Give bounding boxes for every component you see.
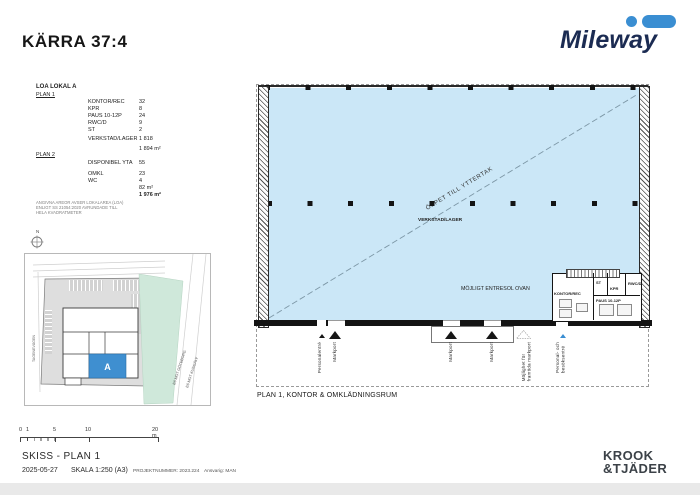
- row-label: ST: [88, 127, 95, 133]
- office-wall: [593, 295, 640, 296]
- compass: N: [30, 229, 46, 249]
- loading-canopy: [431, 326, 514, 343]
- entrance-label-markport: Markport: [489, 342, 495, 362]
- scale-bar-tick: [158, 437, 159, 442]
- desk: [559, 309, 572, 318]
- plan2-subtotal: 82 m²: [139, 185, 153, 191]
- table: [617, 304, 632, 316]
- scale-tick-label: 1: [26, 427, 29, 433]
- road-label-e6-kungalv: E6 MOT KUNGÄLV: [185, 356, 199, 388]
- row-label: KPR: [88, 106, 99, 112]
- personal-entrance-icon: [319, 334, 325, 338]
- krook-tjader-line2: &TJÄDER: [603, 463, 667, 476]
- page-edge-strip: [0, 483, 700, 495]
- row-label: WC: [88, 178, 97, 184]
- site-local-a-label: A: [104, 362, 111, 372]
- scale-bar-tick: [20, 437, 21, 442]
- responsible: Ansvarig: MAN: [204, 469, 236, 474]
- room-label-rwc: RWC/D: [628, 281, 641, 286]
- markport-icon: [445, 331, 457, 339]
- entrance-label-personal: Personalentré: [317, 342, 323, 373]
- entrance-label-visitor: Personal- och besöksentré: [555, 342, 566, 373]
- krook-tjader-logo: KROOK &TJÄDER: [603, 450, 667, 475]
- scale-tick-label: 0: [19, 427, 22, 433]
- scale-tick-label: 10: [85, 427, 91, 433]
- visitor-entrance-icon: [560, 334, 566, 338]
- site-plan-map: A TAGENEVÄGEN E6 MOT GÖTEBORG E6 MOT KUN…: [25, 254, 210, 405]
- row-label: VERKSTAD/LAGER: [88, 136, 137, 142]
- drawing-title: SKISS - PLAN 1: [22, 451, 100, 462]
- mid-column-row: [267, 201, 640, 206]
- entrance-label-future: Möjlighet för framtida markport: [521, 342, 532, 381]
- area-note-line: HELA KVADRATMETER: [36, 210, 82, 215]
- compass-icon: [30, 235, 44, 249]
- entrance-label-future-line2: framtida markport: [527, 342, 533, 381]
- drawing-scale: SKALA 1:250 (A3): [71, 467, 128, 474]
- future-markport-icon: [516, 330, 531, 339]
- row-value: 8: [139, 106, 142, 112]
- desk: [559, 299, 572, 308]
- row-label: PAUS 10-12P: [88, 113, 122, 119]
- row-label: RWC/D: [88, 120, 107, 126]
- road-label-tagenevagen: TAGENEVÄGEN: [32, 335, 36, 362]
- hall-label: VERKSTAD/LAGER: [418, 218, 462, 223]
- markport-icon: [486, 331, 498, 339]
- office-wall: [593, 273, 594, 320]
- plan2-label: PLAN 2: [36, 152, 55, 158]
- room-label-paus: PAUS 10-12P: [596, 298, 621, 303]
- plan1-label: PLAN 1: [36, 92, 55, 98]
- site-green-area: [139, 274, 183, 404]
- mileway-logo: Mileway: [558, 8, 698, 54]
- row-label: DISPONIBEL YTA: [88, 160, 133, 166]
- row-label: OMKL: [88, 171, 104, 177]
- row-value: 4: [139, 178, 142, 184]
- mileway-wordmark: Mileway: [560, 26, 657, 55]
- left-wall: [258, 86, 269, 328]
- door-opening: [317, 320, 326, 326]
- entrance-label-visitor-line2: besöksentré: [561, 342, 567, 373]
- scale-bar-tick: [89, 437, 90, 442]
- markport-icon: [329, 331, 341, 339]
- entresol-label: MÖJLIGT ENTRESOL OVAN: [461, 286, 530, 292]
- table: [599, 304, 614, 316]
- area-table: LOA LOKAL A PLAN 1 KONTOR/REC 32 KPR 8 P…: [35, 84, 185, 219]
- row-value: 1 818: [139, 136, 153, 142]
- markport-opening: [328, 320, 345, 327]
- row-value: 32: [139, 99, 145, 105]
- site-plan: A TAGENEVÄGEN E6 MOT GÖTEBORG E6 MOT KUN…: [24, 253, 211, 406]
- plan-caption: PLAN 1, KONTOR & OMKLÄDNINGSRUM: [257, 392, 397, 399]
- area-table-heading: LOA LOKAL A: [36, 84, 76, 90]
- room-label-st: ST: [596, 280, 601, 285]
- area-total: 1 976 m²: [139, 192, 161, 198]
- row-value: 55: [139, 160, 145, 166]
- compass-north-label: N: [36, 229, 39, 234]
- scale-bar-minor-ticks: [20, 437, 57, 441]
- room-label-kpr: KPR: [610, 286, 618, 291]
- row-value: 24: [139, 113, 145, 119]
- project-number: PROJEKTNUMMER: 2023.224: [133, 469, 199, 474]
- row-value: 9: [139, 120, 142, 126]
- row-value: 23: [139, 171, 145, 177]
- top-column-row: [265, 85, 640, 90]
- scale-tick-label: 5: [53, 427, 56, 433]
- office-wall: [625, 273, 626, 295]
- office-wall: [607, 273, 608, 295]
- plan1-subtotal: 1 894 m²: [139, 146, 161, 152]
- entrance-label-markport: Markport: [332, 342, 338, 362]
- scale-bar-tick: [55, 437, 56, 442]
- desk: [576, 303, 588, 312]
- drawing-sheet: KÄRRA 37:4 Mileway LOA LOKAL A PLAN 1 KO…: [0, 0, 700, 495]
- page-title: KÄRRA 37:4: [22, 32, 128, 52]
- row-label: KONTOR/REC: [88, 99, 125, 105]
- entrance-label-markport: Markport: [448, 342, 454, 362]
- room-label-kontor: KONTOR/REC: [554, 291, 581, 296]
- row-value: 2: [139, 127, 142, 133]
- drawing-date: 2025-05-27: [22, 467, 58, 474]
